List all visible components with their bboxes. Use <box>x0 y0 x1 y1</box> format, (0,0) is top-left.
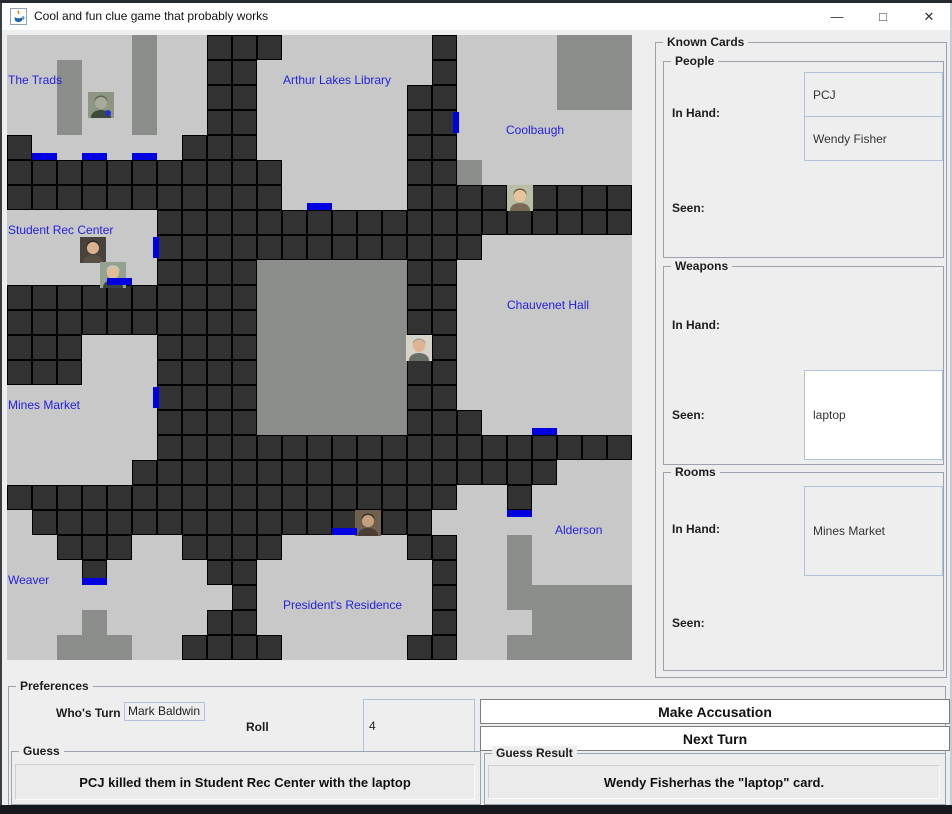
corridor-cell[interactable] <box>432 435 457 460</box>
block-cell <box>532 610 557 635</box>
corridor-cell[interactable] <box>57 485 82 510</box>
block-cell <box>357 360 382 385</box>
corridor-cell[interactable] <box>207 485 232 510</box>
corridor-cell[interactable] <box>7 485 32 510</box>
corridor-cell[interactable] <box>132 185 157 210</box>
corridor-cell[interactable] <box>432 335 457 360</box>
corridor-cell[interactable] <box>107 160 132 185</box>
corridor-cell[interactable] <box>407 110 432 135</box>
corridor-cell[interactable] <box>407 285 432 310</box>
block-cell <box>607 610 632 635</box>
card-pcj[interactable]: PCJ <box>804 72 943 117</box>
corridor-cell[interactable] <box>257 210 282 235</box>
corridor-cell[interactable] <box>332 460 357 485</box>
corridor-cell[interactable] <box>432 60 457 85</box>
corridor-cell[interactable] <box>482 460 507 485</box>
corridor-cell[interactable] <box>182 310 207 335</box>
block-cell <box>607 60 632 85</box>
corridor-cell[interactable] <box>357 485 382 510</box>
corridor-cell[interactable] <box>207 335 232 360</box>
corridor-cell[interactable] <box>32 485 57 510</box>
block-cell <box>582 635 607 660</box>
corridor-cell[interactable] <box>207 385 232 410</box>
roll-value: 4 <box>369 719 376 733</box>
corridor-cell[interactable] <box>557 185 582 210</box>
card-mines-market[interactable]: Mines Market <box>804 486 943 576</box>
corridor-cell[interactable] <box>7 185 32 210</box>
corridor-cell[interactable] <box>182 460 207 485</box>
corridor-cell[interactable] <box>482 185 507 210</box>
corridor-cell[interactable] <box>457 235 482 260</box>
corridor-cell[interactable] <box>182 235 207 260</box>
corridor-cell[interactable] <box>182 635 207 660</box>
block-cell <box>557 60 582 85</box>
corridor-cell[interactable] <box>232 60 257 85</box>
corridor-cell[interactable] <box>232 610 257 635</box>
corridor-cell[interactable] <box>332 210 357 235</box>
corridor-cell[interactable] <box>582 435 607 460</box>
corridor-cell[interactable] <box>32 335 57 360</box>
corridor-cell[interactable] <box>457 410 482 435</box>
corridor-cell[interactable] <box>432 385 457 410</box>
corridor-cell[interactable] <box>157 285 182 310</box>
corridor-cell[interactable] <box>407 485 432 510</box>
corridor-cell[interactable] <box>157 385 182 410</box>
corridor-cell[interactable] <box>182 385 207 410</box>
corridor-cell[interactable] <box>107 310 132 335</box>
corridor-cell[interactable] <box>232 385 257 410</box>
corridor-cell[interactable] <box>57 285 82 310</box>
corridor-cell[interactable] <box>432 185 457 210</box>
weapons-in-hand-label: In Hand: <box>672 318 720 332</box>
game-board[interactable]: The TradsArthur Lakes LibraryCoolbaughSt… <box>7 35 632 660</box>
corridor-cell[interactable] <box>432 410 457 435</box>
make-accusation-button[interactable]: Make Accusation <box>480 699 950 724</box>
block-cell <box>82 610 107 635</box>
corridor-cell[interactable] <box>532 210 557 235</box>
corridor-cell[interactable] <box>407 460 432 485</box>
corridor-cell[interactable] <box>182 185 207 210</box>
corridor-cell[interactable] <box>232 110 257 135</box>
room-label-arthur-lakes-library: Arthur Lakes Library <box>283 73 391 87</box>
block-cell <box>332 285 357 310</box>
corridor-cell[interactable] <box>257 435 282 460</box>
corridor-cell[interactable] <box>107 185 132 210</box>
corridor-cell[interactable] <box>207 185 232 210</box>
corridor-cell[interactable] <box>257 185 282 210</box>
corridor-cell[interactable] <box>57 335 82 360</box>
corridor-cell[interactable] <box>332 485 357 510</box>
corridor-cell[interactable] <box>57 160 82 185</box>
corridor-cell[interactable] <box>307 210 332 235</box>
door-marker <box>132 153 157 160</box>
corridor-cell[interactable] <box>432 485 457 510</box>
block-cell <box>357 410 382 435</box>
corridor-cell[interactable] <box>207 260 232 285</box>
corridor-cell[interactable] <box>407 385 432 410</box>
corridor-cell[interactable] <box>357 235 382 260</box>
corridor-cell[interactable] <box>107 485 132 510</box>
corridor-cell[interactable] <box>532 185 557 210</box>
corridor-cell[interactable] <box>157 435 182 460</box>
corridor-cell[interactable] <box>432 160 457 185</box>
block-cell <box>107 635 132 660</box>
corridor-cell[interactable] <box>382 210 407 235</box>
corridor-cell[interactable] <box>282 510 307 535</box>
corridor-cell[interactable] <box>57 185 82 210</box>
corridor-cell[interactable] <box>432 310 457 335</box>
corridor-cell[interactable] <box>457 210 482 235</box>
corridor-cell[interactable] <box>382 510 407 535</box>
block-cell <box>607 635 632 660</box>
card-laptop[interactable]: laptop <box>804 370 943 460</box>
corridor-cell[interactable] <box>407 160 432 185</box>
people-in-hand-cards: PCJWendy Fisher <box>804 72 943 161</box>
corridor-cell[interactable] <box>207 110 232 135</box>
corridor-cell[interactable] <box>132 510 157 535</box>
room-label-coolbaugh: Coolbaugh <box>506 123 564 137</box>
window-title: Cool and fun clue game that probably wor… <box>34 3 268 30</box>
block-cell <box>282 260 307 285</box>
block-cell <box>282 410 307 435</box>
corridor-cell[interactable] <box>132 310 157 335</box>
corridor-cell[interactable] <box>182 360 207 385</box>
corridor-cell[interactable] <box>432 135 457 160</box>
corridor-cell[interactable] <box>182 485 207 510</box>
corridor-cell[interactable] <box>157 210 182 235</box>
corridor-cell[interactable] <box>507 210 532 235</box>
corridor-cell[interactable] <box>207 85 232 110</box>
java-icon <box>10 8 27 25</box>
corridor-cell[interactable] <box>82 310 107 335</box>
player-token-man-dark-beard[interactable] <box>355 510 381 536</box>
corridor-cell[interactable] <box>607 210 632 235</box>
corridor-cell[interactable] <box>432 235 457 260</box>
corridor-cell[interactable] <box>407 635 432 660</box>
corridor-cell[interactable] <box>232 135 257 160</box>
corridor-cell[interactable] <box>82 160 107 185</box>
maximize-button[interactable]: □ <box>868 3 898 30</box>
corridor-cell[interactable] <box>457 185 482 210</box>
corridor-cell[interactable] <box>307 485 332 510</box>
corridor-cell[interactable] <box>182 335 207 360</box>
corridor-cell[interactable] <box>407 210 432 235</box>
corridor-cell[interactable] <box>232 535 257 560</box>
corridor-cell[interactable] <box>7 335 32 360</box>
block-cell <box>282 310 307 335</box>
corridor-cell[interactable] <box>357 460 382 485</box>
corridor-cell[interactable] <box>182 285 207 310</box>
corridor-cell[interactable] <box>257 460 282 485</box>
player-token-camouflaged-figure[interactable] <box>88 92 114 118</box>
corridor-cell[interactable] <box>232 510 257 535</box>
corridor-cell[interactable] <box>232 460 257 485</box>
corridor-cell[interactable] <box>282 210 307 235</box>
corridor-cell[interactable] <box>532 460 557 485</box>
corridor-cell[interactable] <box>207 60 232 85</box>
corridor-cell[interactable] <box>432 535 457 560</box>
corridor-cell[interactable] <box>232 35 257 60</box>
guess-text: PCJ killed them in Student Rec Center wi… <box>79 775 411 790</box>
block-cell <box>257 385 282 410</box>
player-token-man-dark-hair-glasses[interactable] <box>80 237 106 263</box>
corridor-cell[interactable] <box>207 560 232 585</box>
corridor-cell[interactable] <box>407 410 432 435</box>
corridor-cell[interactable] <box>57 310 82 335</box>
corridor-cell[interactable] <box>407 260 432 285</box>
app-window: Cool and fun clue game that probably wor… <box>0 0 952 814</box>
corridor-cell[interactable] <box>207 160 232 185</box>
corridor-cell[interactable] <box>257 510 282 535</box>
corridor-cell[interactable] <box>32 510 57 535</box>
corridor-cell[interactable] <box>432 610 457 635</box>
corridor-cell[interactable] <box>232 260 257 285</box>
corridor-cell[interactable] <box>7 310 32 335</box>
corridor-cell[interactable] <box>232 85 257 110</box>
corridor-cell[interactable] <box>307 460 332 485</box>
corridor-cell[interactable] <box>207 210 232 235</box>
corridor-cell[interactable] <box>157 235 182 260</box>
corridor-cell[interactable] <box>107 510 132 535</box>
block-cell <box>457 160 482 185</box>
corridor-cell[interactable] <box>132 160 157 185</box>
corridor-cell[interactable] <box>232 160 257 185</box>
corridor-cell[interactable] <box>207 285 232 310</box>
corridor-cell[interactable] <box>307 435 332 460</box>
corridor-cell[interactable] <box>282 485 307 510</box>
corridor-cell[interactable] <box>557 435 582 460</box>
corridor-cell[interactable] <box>232 310 257 335</box>
corridor-cell[interactable] <box>232 235 257 260</box>
corridor-cell[interactable] <box>507 435 532 460</box>
corridor-cell[interactable] <box>232 285 257 310</box>
corridor-cell[interactable] <box>382 235 407 260</box>
corridor-cell[interactable] <box>182 135 207 160</box>
block-cell <box>282 360 307 385</box>
corridor-cell[interactable] <box>432 260 457 285</box>
close-button[interactable]: ✕ <box>914 3 944 30</box>
corridor-cell[interactable] <box>57 510 82 535</box>
corridor-cell[interactable] <box>382 460 407 485</box>
corridor-cell[interactable] <box>507 460 532 485</box>
block-cell <box>332 360 357 385</box>
corridor-cell[interactable] <box>82 185 107 210</box>
people-section-title: People <box>671 54 718 68</box>
block-cell <box>357 285 382 310</box>
block-cell <box>557 35 582 60</box>
corridor-cell[interactable] <box>182 535 207 560</box>
corridor-cell[interactable] <box>182 260 207 285</box>
player-token-woman-curly-brown-hair[interactable] <box>507 185 533 211</box>
corridor-cell[interactable] <box>157 360 182 385</box>
guess-panel: Guess PCJ killed them in Student Rec Cen… <box>11 751 481 805</box>
corridor-cell[interactable] <box>282 235 307 260</box>
corridor-cell[interactable] <box>407 360 432 385</box>
corridor-cell[interactable] <box>207 435 232 460</box>
door-marker <box>532 428 557 435</box>
corridor-cell[interactable] <box>232 635 257 660</box>
corridor-cell[interactable] <box>7 135 32 160</box>
corridor-cell[interactable] <box>282 460 307 485</box>
corridor-cell[interactable] <box>207 460 232 485</box>
corridor-cell[interactable] <box>7 285 32 310</box>
corridor-cell[interactable] <box>132 485 157 510</box>
player-token-man-smiling[interactable] <box>406 335 432 361</box>
corridor-cell[interactable] <box>432 85 457 110</box>
corridor-cell[interactable] <box>7 160 32 185</box>
corridor-cell[interactable] <box>607 185 632 210</box>
corridor-cell[interactable] <box>407 310 432 335</box>
block-cell <box>607 85 632 110</box>
corridor-cell[interactable] <box>157 335 182 360</box>
block-cell <box>582 610 607 635</box>
block-cell <box>607 585 632 610</box>
corridor-cell[interactable] <box>132 460 157 485</box>
corridor-cell[interactable] <box>257 485 282 510</box>
corridor-cell[interactable] <box>157 160 182 185</box>
roll-value-box: 4 <box>363 699 475 752</box>
corridor-cell[interactable] <box>32 160 57 185</box>
corridor-cell[interactable] <box>357 435 382 460</box>
corridor-cell[interactable] <box>207 635 232 660</box>
minimize-button[interactable]: — <box>822 3 852 30</box>
known-cards-panel: Known Cards People In Hand: Seen: PCJWen… <box>655 42 947 678</box>
corridor-cell[interactable] <box>482 435 507 460</box>
corridor-cell[interactable] <box>382 435 407 460</box>
corridor-cell[interactable] <box>357 210 382 235</box>
corridor-cell[interactable] <box>207 610 232 635</box>
block-cell <box>332 385 357 410</box>
corridor-cell[interactable] <box>157 485 182 510</box>
block-cell <box>332 335 357 360</box>
corridor-cell[interactable] <box>232 435 257 460</box>
corridor-cell[interactable] <box>157 460 182 485</box>
corridor-cell[interactable] <box>182 510 207 535</box>
corridor-cell[interactable] <box>307 510 332 535</box>
corridor-cell[interactable] <box>432 210 457 235</box>
corridor-cell[interactable] <box>432 360 457 385</box>
corridor-cell[interactable] <box>207 35 232 60</box>
corridor-cell[interactable] <box>432 635 457 660</box>
corridor-cell[interactable] <box>182 435 207 460</box>
corridor-cell[interactable] <box>407 135 432 160</box>
corridor-cell[interactable] <box>482 210 507 235</box>
guess-text-area: PCJ killed them in Student Rec Center wi… <box>15 764 475 800</box>
corridor-cell[interactable] <box>232 410 257 435</box>
block-cell <box>382 410 407 435</box>
corridor-cell[interactable] <box>582 185 607 210</box>
corridor-cell[interactable] <box>32 310 57 335</box>
block-cell <box>57 110 82 135</box>
corridor-cell[interactable] <box>532 435 557 460</box>
block-cell <box>507 535 532 560</box>
corridor-cell[interactable] <box>307 235 332 260</box>
corridor-cell[interactable] <box>257 535 282 560</box>
corridor-cell[interactable] <box>32 185 57 210</box>
corridor-cell[interactable] <box>232 585 257 610</box>
corridor-cell[interactable] <box>132 285 157 310</box>
block-cell <box>257 410 282 435</box>
corridor-cell[interactable] <box>207 135 232 160</box>
room-label-weaver: Weaver <box>8 573 49 587</box>
corridor-cell[interactable] <box>32 285 57 310</box>
corridor-cell[interactable] <box>182 160 207 185</box>
corridor-cell[interactable] <box>582 210 607 235</box>
corridor-cell[interactable] <box>407 235 432 260</box>
corridor-cell[interactable] <box>82 510 107 535</box>
corridor-cell[interactable] <box>282 435 307 460</box>
corridor-cell[interactable] <box>107 535 132 560</box>
corridor-cell[interactable] <box>182 410 207 435</box>
corridor-cell[interactable] <box>232 185 257 210</box>
corridor-cell[interactable] <box>157 310 182 335</box>
corridor-cell[interactable] <box>157 510 182 535</box>
corridor-cell[interactable] <box>332 435 357 460</box>
corridor-cell[interactable] <box>432 285 457 310</box>
corridor-cell[interactable] <box>232 360 257 385</box>
corridor-cell[interactable] <box>407 185 432 210</box>
corridor-cell[interactable] <box>407 510 432 535</box>
corridor-cell[interactable] <box>432 460 457 485</box>
corridor-cell[interactable] <box>232 210 257 235</box>
corridor-cell[interactable] <box>407 535 432 560</box>
corridor-cell[interactable] <box>457 435 482 460</box>
corridor-cell[interactable] <box>207 310 232 335</box>
weapons-section-title: Weapons <box>671 259 732 273</box>
corridor-cell[interactable] <box>607 435 632 460</box>
guess-result-panel: Guess Result Wendy Fisherhas the "laptop… <box>484 753 946 805</box>
corridor-cell[interactable] <box>232 485 257 510</box>
corridor-cell[interactable] <box>382 485 407 510</box>
corridor-cell[interactable] <box>232 560 257 585</box>
card-wendy-fisher[interactable]: Wendy Fisher <box>804 116 943 161</box>
corridor-cell[interactable] <box>257 235 282 260</box>
corridor-cell[interactable] <box>407 85 432 110</box>
block-cell <box>557 635 582 660</box>
corridor-cell[interactable] <box>432 560 457 585</box>
corridor-cell[interactable] <box>157 185 182 210</box>
corridor-cell[interactable] <box>207 235 232 260</box>
corridor-cell[interactable] <box>407 435 432 460</box>
corridor-cell[interactable] <box>257 160 282 185</box>
corridor-cell[interactable] <box>257 635 282 660</box>
corridor-cell[interactable] <box>332 235 357 260</box>
corridor-cell[interactable] <box>207 410 232 435</box>
corridor-cell[interactable] <box>82 285 107 310</box>
corridor-cell[interactable] <box>507 485 532 510</box>
block-cell <box>557 585 582 610</box>
corridor-cell[interactable] <box>7 360 32 385</box>
corridor-cell[interactable] <box>107 285 132 310</box>
corridor-cell[interactable] <box>32 360 57 385</box>
corridor-cell[interactable] <box>207 510 232 535</box>
corridor-cell[interactable] <box>207 535 232 560</box>
corridor-cell[interactable] <box>432 35 457 60</box>
corridor-cell[interactable] <box>82 535 107 560</box>
corridor-cell[interactable] <box>57 535 82 560</box>
corridor-cell[interactable] <box>157 260 182 285</box>
corridor-cell[interactable] <box>457 460 482 485</box>
corridor-cell[interactable] <box>157 410 182 435</box>
corridor-cell[interactable] <box>57 360 82 385</box>
corridor-cell[interactable] <box>207 360 232 385</box>
corridor-cell[interactable] <box>557 210 582 235</box>
corridor-cell[interactable] <box>82 485 107 510</box>
corridor-cell[interactable] <box>182 210 207 235</box>
corridor-cell[interactable] <box>257 35 282 60</box>
corridor-cell[interactable] <box>232 335 257 360</box>
corridor-cell[interactable] <box>432 585 457 610</box>
